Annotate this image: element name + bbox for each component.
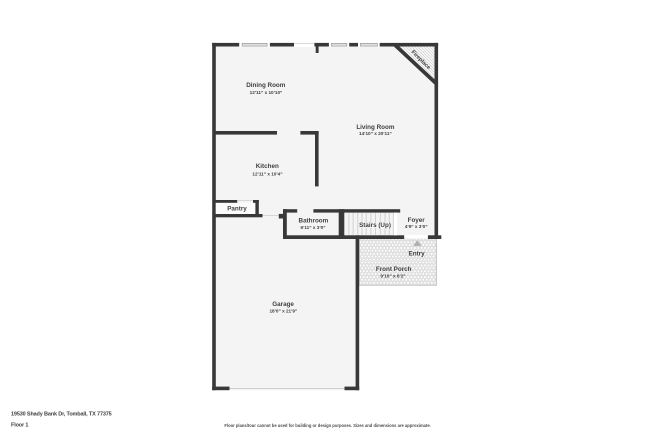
svg-text:Foyer: Foyer	[408, 217, 426, 224]
svg-text:Kitchen: Kitchen	[256, 163, 279, 170]
svg-text:Floor 1: Floor 1	[11, 422, 28, 428]
svg-text:Living Room: Living Room	[356, 124, 395, 131]
svg-text:Floor plans/tour cannot be use: Floor plans/tour cannot be used for buil…	[224, 423, 430, 428]
svg-text:Dining Room: Dining Room	[246, 82, 286, 89]
svg-text:Pantry: Pantry	[227, 205, 247, 212]
svg-text:Stairs (Up): Stairs (Up)	[359, 222, 391, 229]
svg-text:14’10” x 20’11”: 14’10” x 20’11”	[359, 131, 392, 136]
svg-text:4’9” x 3’0”: 4’9” x 3’0”	[405, 224, 428, 229]
svg-text:19530 Shady Bank Dr, Tomball,: 19530 Shady Bank Dr, Tomball, TX 77375	[11, 412, 112, 418]
svg-text:6’11” x 3’0”: 6’11” x 3’0”	[300, 225, 325, 230]
svg-text:9’10” x 6’2”: 9’10” x 6’2”	[380, 274, 405, 279]
svg-text:18’0” x 21’9”: 18’0” x 21’9”	[269, 309, 297, 314]
svg-text:Garage: Garage	[272, 301, 294, 308]
svg-text:Front Porch: Front Porch	[376, 266, 412, 273]
svg-text:12’11” x 10’10”: 12’11” x 10’10”	[250, 90, 283, 95]
svg-text:12’11” x 10’4”: 12’11” x 10’4”	[252, 172, 282, 177]
svg-text:Bathroom: Bathroom	[299, 218, 329, 225]
svg-text:Entry: Entry	[409, 250, 426, 257]
